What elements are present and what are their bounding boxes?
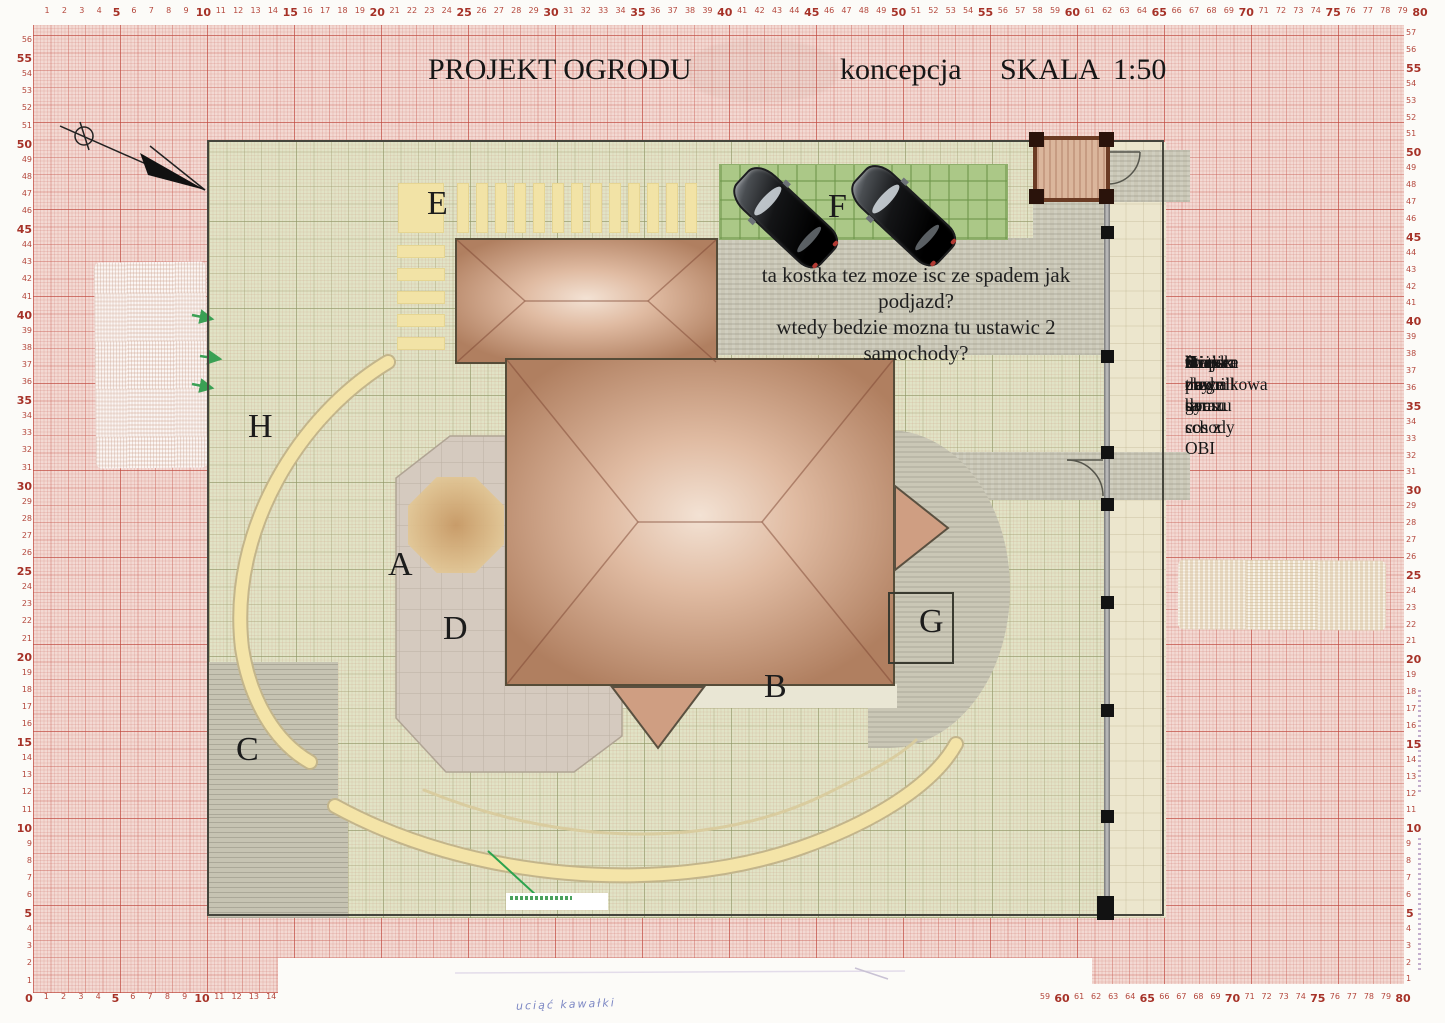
ruler-number: 78 <box>1380 6 1390 15</box>
stepping-stone <box>397 337 445 350</box>
ruler-number: 5 <box>6 907 32 920</box>
stepping-stone <box>552 183 564 233</box>
ruler-number: 25 <box>456 6 471 19</box>
ruler-number: 51 <box>6 121 32 130</box>
ruler-number: 60 <box>1065 6 1080 19</box>
ruler-number: 8 <box>6 856 32 865</box>
ruler-number: 79 <box>1398 6 1408 15</box>
ruler-number: 79 <box>1381 992 1391 1001</box>
ruler-number: 54 <box>6 69 32 78</box>
ruler-number: 4 <box>6 924 32 933</box>
ruler-number: 47 <box>841 6 851 15</box>
ruler-number: 24 <box>1406 586 1416 595</box>
ruler-number: 16 <box>1406 721 1416 730</box>
stepping-stone <box>476 183 488 233</box>
ruler-number: 33 <box>6 428 32 437</box>
ruler-number: 14 <box>268 6 278 15</box>
stepping-stone <box>457 183 469 233</box>
ruler-number: 43 <box>772 6 782 15</box>
ruler-number: 26 <box>1406 552 1416 561</box>
ruler-number: 13 <box>6 770 32 779</box>
ruler-number: 44 <box>6 240 32 249</box>
fence-post <box>1101 596 1114 609</box>
ruler-number: 38 <box>685 6 695 15</box>
gate-post <box>1029 189 1044 204</box>
ruler-number: 23 <box>424 6 434 15</box>
ruler-number: 42 <box>1406 282 1416 291</box>
ruler-number: 40 <box>1406 315 1421 328</box>
ruler-number: 75 <box>1310 992 1325 1005</box>
ruler-number: 41 <box>737 6 747 15</box>
ruler-number: 75 <box>1325 6 1340 19</box>
strip-right-of-fence <box>1108 142 1166 918</box>
ruler-number: 61 <box>1074 992 1084 1001</box>
gate-post <box>1029 132 1044 147</box>
driveway-annotation: ta kostka tez moze isc ze spadem jak pod… <box>740 262 1092 366</box>
ruler-number: 27 <box>494 6 504 15</box>
ruler-number: 68 <box>1193 992 1203 1001</box>
ruler-number: 28 <box>6 514 32 523</box>
fence-post <box>1101 446 1114 459</box>
ruler-number: 24 <box>442 6 452 15</box>
ruler-number: 36 <box>650 6 660 15</box>
annotation-line1: ta kostka tez moze isc ze spadem jak pod… <box>740 262 1092 314</box>
ruler-number: 10 <box>194 992 209 1005</box>
ruler-number: 73 <box>1279 992 1289 1001</box>
ruler-number: 39 <box>702 6 712 15</box>
ruler-number: 9 <box>1406 839 1411 848</box>
ruler-number: 3 <box>1406 941 1411 950</box>
ruler-number: 62 <box>1102 6 1112 15</box>
paving-bottom-left <box>208 815 348 918</box>
ruler-number: 74 <box>1311 6 1321 15</box>
ruler-number: 19 <box>355 6 365 15</box>
ruler-number: 3 <box>78 992 83 1001</box>
ruler-number: 41 <box>6 292 32 301</box>
plan-label-D: D <box>443 610 468 648</box>
ruler-number: 34 <box>615 6 625 15</box>
ruler-number: 22 <box>407 6 417 15</box>
ruler-number: 63 <box>1108 992 1118 1001</box>
ruler-number: 30 <box>543 6 558 19</box>
ruler-number: 72 <box>1262 992 1272 1001</box>
gravel-strip-B <box>503 684 897 708</box>
fence-corner-post <box>1097 896 1114 920</box>
stepping-stone <box>533 183 545 233</box>
tiny-caption-box <box>506 893 608 910</box>
margin-microtext <box>1418 838 1421 970</box>
ruler-number: 39 <box>1406 332 1416 341</box>
ruler-number: 43 <box>1406 265 1416 274</box>
ruler-number: 58 <box>1033 6 1043 15</box>
ruler-number: 1 <box>44 6 49 15</box>
stepping-stone <box>397 268 445 281</box>
ruler-number: 31 <box>6 463 32 472</box>
ruler-number: 76 <box>1330 992 1340 1001</box>
ruler-number: 67 <box>1176 992 1186 1001</box>
ruler-number: 54 <box>1406 79 1416 88</box>
garage-roof <box>455 238 718 364</box>
ruler-number: 1 <box>44 992 49 1001</box>
ruler-number: 49 <box>6 155 32 164</box>
ruler-number: 18 <box>337 6 347 15</box>
fence-post <box>1101 498 1114 511</box>
ruler-number: 30 <box>6 480 32 493</box>
ruler-number: 55 <box>978 6 993 19</box>
ruler-number: 44 <box>1406 248 1416 257</box>
stepping-stone <box>647 183 659 233</box>
ruler-number: 77 <box>1347 992 1357 1001</box>
stepping-stone <box>609 183 621 233</box>
ruler-number: 51 <box>1406 129 1416 138</box>
ruler-number: 56 <box>1406 45 1416 54</box>
ruler-number: 50 <box>6 138 32 151</box>
ruler-number: 5 <box>113 6 121 19</box>
fence-post <box>1101 704 1114 717</box>
stepping-stone <box>397 291 445 304</box>
gate-post <box>1099 189 1114 204</box>
ruler-number: 11 <box>1406 805 1416 814</box>
ruler-number: 17 <box>1406 704 1416 713</box>
gate-post <box>1099 132 1114 147</box>
ruler-number: 66 <box>1159 992 1169 1001</box>
ruler-number: 19 <box>1406 670 1416 679</box>
ruler-number: 1 <box>1406 974 1411 983</box>
ruler-number: 33 <box>1406 434 1416 443</box>
path-outside-gate-top <box>1110 150 1190 202</box>
plan-label-A: A <box>388 546 413 584</box>
ruler-number: 20 <box>6 651 32 664</box>
ruler-number: 6 <box>131 6 136 15</box>
ruler-number: 64 <box>1137 6 1147 15</box>
ruler-number: 59 <box>1040 992 1050 1001</box>
pencil-scribble-left <box>94 261 208 468</box>
ruler-number: 33 <box>598 6 608 15</box>
ruler-number: 52 <box>928 6 938 15</box>
ruler-number: 21 <box>6 634 32 643</box>
plan-label-B: B <box>764 668 787 706</box>
ruler-number: 7 <box>1406 873 1411 882</box>
ruler-number: 8 <box>165 992 170 1001</box>
gate-apron-paving <box>1033 200 1108 240</box>
ruler-number: 11 <box>6 805 32 814</box>
ruler-number: 40 <box>6 309 32 322</box>
stepping-stone <box>397 245 445 258</box>
ruler-number: 23 <box>1406 603 1416 612</box>
ruler-number: 2 <box>62 6 67 15</box>
ruler-number: 54 <box>963 6 973 15</box>
ruler-number: 45 <box>804 6 819 19</box>
ruler-number: 78 <box>1364 992 1374 1001</box>
ruler-number: 15 <box>6 736 32 749</box>
ruler-number: 17 <box>320 6 330 15</box>
scale-value: 1:50 <box>1113 53 1166 87</box>
ruler-number: 22 <box>1406 620 1416 629</box>
ruler-number: 15 <box>1406 738 1421 751</box>
stepping-stone <box>397 314 445 327</box>
ruler-number: 10 <box>6 822 32 835</box>
pencil-scribble-right <box>1178 559 1386 630</box>
ruler-number: 53 <box>6 86 32 95</box>
ruler-number: 25 <box>1406 569 1421 582</box>
ruler-number: 60 <box>1054 992 1069 1005</box>
ruler-number: 69 <box>1210 992 1220 1001</box>
garden-plan-scan: PROJEKT OGRODU koncepcja SKALA 1:50 <box>0 0 1445 1023</box>
ruler-number: 15 <box>283 6 298 19</box>
ruler-number: 32 <box>581 6 591 15</box>
ruler-number: 3 <box>6 941 32 950</box>
ruler-number: 31 <box>563 6 573 15</box>
ruler-number: 11 <box>216 6 226 15</box>
ruler-number: 29 <box>1406 501 1416 510</box>
ruler-number: 14 <box>266 992 276 1001</box>
fence-post <box>1101 810 1114 823</box>
ruler-number: 52 <box>1406 113 1416 122</box>
ruler-number: 42 <box>754 6 764 15</box>
ruler-number: 6 <box>6 890 32 899</box>
scale-label: SKALA <box>1000 53 1100 87</box>
ruler-number: 38 <box>6 343 32 352</box>
ruler-number: 40 <box>717 6 732 19</box>
ruler-number: 48 <box>1406 180 1416 189</box>
plan-label-C: C <box>236 731 259 769</box>
ruler-number: 9 <box>6 839 32 848</box>
stepping-stone <box>590 183 602 233</box>
ruler-number: 51 <box>911 6 921 15</box>
ruler-number: 0 <box>25 992 33 1005</box>
ruler-number: 53 <box>946 6 956 15</box>
ruler-number: 35 <box>630 6 645 19</box>
ruler-number: 70 <box>1239 6 1254 19</box>
ruler-number: 56 <box>6 35 32 44</box>
stepping-stone <box>495 183 507 233</box>
ruler-number: 62 <box>1091 992 1101 1001</box>
ruler-number: 74 <box>1296 992 1306 1001</box>
ruler-number: 4 <box>96 992 101 1001</box>
ruler-number: 55 <box>1406 62 1421 75</box>
ruler-number: 12 <box>233 6 243 15</box>
ruler-number: 46 <box>6 206 32 215</box>
ruler-number: 21 <box>1406 636 1416 645</box>
ruler-number: 57 <box>1406 28 1416 37</box>
ruler-number: 24 <box>6 582 32 591</box>
fence-post <box>1101 350 1114 363</box>
ruler-number: 52 <box>6 103 32 112</box>
ruler-number: 6 <box>130 992 135 1001</box>
ruler-number: 47 <box>1406 197 1416 206</box>
ruler-number: 53 <box>1406 96 1416 105</box>
ruler-number: 2 <box>61 992 66 1001</box>
ruler-number: 48 <box>859 6 869 15</box>
ruler-number: 35 <box>1406 400 1421 413</box>
ruler-number: 10 <box>196 6 211 19</box>
ruler-number: 65 <box>1140 992 1155 1005</box>
ruler-number: 35 <box>6 394 32 407</box>
tiny-caption-text <box>510 896 572 900</box>
ruler-number: 46 <box>824 6 834 15</box>
stepping-stone <box>628 183 640 233</box>
ruler-number: 34 <box>6 411 32 420</box>
plan-label-F: F <box>828 188 847 226</box>
ruler-number: 50 <box>891 6 906 19</box>
ruler-number: 4 <box>1406 924 1411 933</box>
ruler-number: 1 <box>6 976 32 985</box>
ruler-number: 4 <box>97 6 102 15</box>
ruler-number: 28 <box>1406 518 1416 527</box>
ruler-number: 50 <box>1406 146 1421 159</box>
ruler-number: 32 <box>1406 451 1416 460</box>
ruler-number: 77 <box>1363 6 1373 15</box>
ruler-number: 13 <box>249 992 259 1001</box>
plan-label-E: E <box>427 185 448 223</box>
ruler-number: 16 <box>6 719 32 728</box>
ruler-number: 66 <box>1172 6 1182 15</box>
page-subtitle: koncepcja <box>840 53 962 87</box>
ruler-number: 71 <box>1245 992 1255 1001</box>
ruler-number: 18 <box>6 685 32 694</box>
ruler-number: 25 <box>6 565 32 578</box>
ruler-number: 12 <box>6 787 32 796</box>
page-title: PROJEKT OGRODU <box>428 53 692 87</box>
ruler-number: 80 <box>1395 992 1410 1005</box>
ruler-number: 71 <box>1259 6 1269 15</box>
fence-post <box>1101 226 1114 239</box>
paper-cutout <box>278 958 1092 998</box>
ruler-number: 61 <box>1085 6 1095 15</box>
ruler-number: 39 <box>6 326 32 335</box>
ruler-number: 55 <box>6 52 32 65</box>
ruler-number: 3 <box>79 6 84 15</box>
ruler-number: 26 <box>476 6 486 15</box>
ruler-number: 44 <box>789 6 799 15</box>
ruler-number: 28 <box>511 6 521 15</box>
stepping-stone <box>571 183 583 233</box>
ruler-number: 26 <box>6 548 32 557</box>
ruler-number: 76 <box>1345 6 1355 15</box>
ruler-number: 45 <box>6 223 32 236</box>
ruler-number: 8 <box>166 6 171 15</box>
ruler-number: 45 <box>1406 231 1421 244</box>
ruler-number: 12 <box>1406 789 1416 798</box>
ruler-number: 9 <box>183 6 188 15</box>
ruler-number: 12 <box>232 992 242 1001</box>
ruler-number: 57 <box>1015 6 1025 15</box>
ruler-number: 19 <box>6 668 32 677</box>
ruler-number: 17 <box>6 702 32 711</box>
ruler-number: 37 <box>1406 366 1416 375</box>
ruler-number: 37 <box>668 6 678 15</box>
ruler-number: 80 <box>1412 6 1427 19</box>
ruler-number: 49 <box>1406 163 1416 172</box>
ruler-number: 13 <box>250 6 260 15</box>
plan-label-G: G <box>919 603 944 641</box>
ruler-number: 37 <box>6 360 32 369</box>
ruler-number: 23 <box>6 599 32 608</box>
house-roof <box>505 358 895 686</box>
ruler-number: 14 <box>6 753 32 762</box>
ruler-number: 14 <box>1406 755 1416 764</box>
ruler-number: 20 <box>370 6 385 19</box>
ruler-number: 43 <box>6 257 32 266</box>
stepping-stone <box>666 183 678 233</box>
ruler-number: 38 <box>1406 349 1416 358</box>
ruler-number: 41 <box>1406 298 1416 307</box>
ruler-number: 65 <box>1152 6 1167 19</box>
ruler-number: 68 <box>1206 6 1216 15</box>
ruler-number: 67 <box>1189 6 1199 15</box>
ruler-number: 47 <box>6 189 32 198</box>
ruler-number: 2 <box>1406 958 1411 967</box>
ruler-number: 21 <box>390 6 400 15</box>
ruler-number: 7 <box>6 873 32 882</box>
stepping-stone <box>685 183 697 233</box>
ruler-number: 42 <box>6 274 32 283</box>
ruler-number: 69 <box>1224 6 1234 15</box>
ruler-number: 8 <box>1406 856 1411 865</box>
ruler-number: 5 <box>112 992 120 1005</box>
ruler-number: 56 <box>998 6 1008 15</box>
stepping-stone <box>514 183 526 233</box>
ruler-number: 49 <box>876 6 886 15</box>
ruler-number: 64 <box>1125 992 1135 1001</box>
ruler-number: 9 <box>182 992 187 1001</box>
ruler-number: 7 <box>149 6 154 15</box>
ruler-number: 20 <box>1406 653 1421 666</box>
ruler-number: 32 <box>6 445 32 454</box>
ruler-number: 36 <box>6 377 32 386</box>
ruler-number: 73 <box>1293 6 1303 15</box>
erased-name-smudge <box>686 40 838 102</box>
grill-area-C <box>208 662 338 815</box>
ruler-number: 29 <box>6 497 32 506</box>
ruler-number: 16 <box>303 6 313 15</box>
ruler-number: 63 <box>1119 6 1129 15</box>
ruler-number: 46 <box>1406 214 1416 223</box>
ruler-number: 72 <box>1276 6 1286 15</box>
ruler-number: 31 <box>1406 467 1416 476</box>
ruler-number: 5 <box>1406 907 1414 920</box>
ruler-number: 48 <box>6 172 32 181</box>
ruler-number: 70 <box>1225 992 1240 1005</box>
ruler-number: 22 <box>6 616 32 625</box>
ruler-number: 27 <box>6 531 32 540</box>
ruler-number: 29 <box>529 6 539 15</box>
ruler-number: 11 <box>214 992 224 1001</box>
ruler-number: 30 <box>1406 484 1421 497</box>
ruler-number: 27 <box>1406 535 1416 544</box>
annotation-line2: wtedy bedzie mozna tu ustawic 2 samochod… <box>740 314 1092 366</box>
ruler-number: 7 <box>148 992 153 1001</box>
ruler-number: 13 <box>1406 772 1416 781</box>
ruler-number: 36 <box>1406 383 1416 392</box>
legend-label: tu moze byc cos z OBI <box>1185 352 1223 460</box>
ruler-number: 10 <box>1406 822 1421 835</box>
plan-label-H: H <box>248 408 273 446</box>
ruler-number: 6 <box>1406 890 1411 899</box>
handwritten-note: uciąć kawałki <box>516 996 616 1012</box>
ruler-number: 59 <box>1050 6 1060 15</box>
ruler-number: 34 <box>1406 417 1416 426</box>
ruler-number: 2 <box>6 958 32 967</box>
ruler-number: 18 <box>1406 687 1416 696</box>
